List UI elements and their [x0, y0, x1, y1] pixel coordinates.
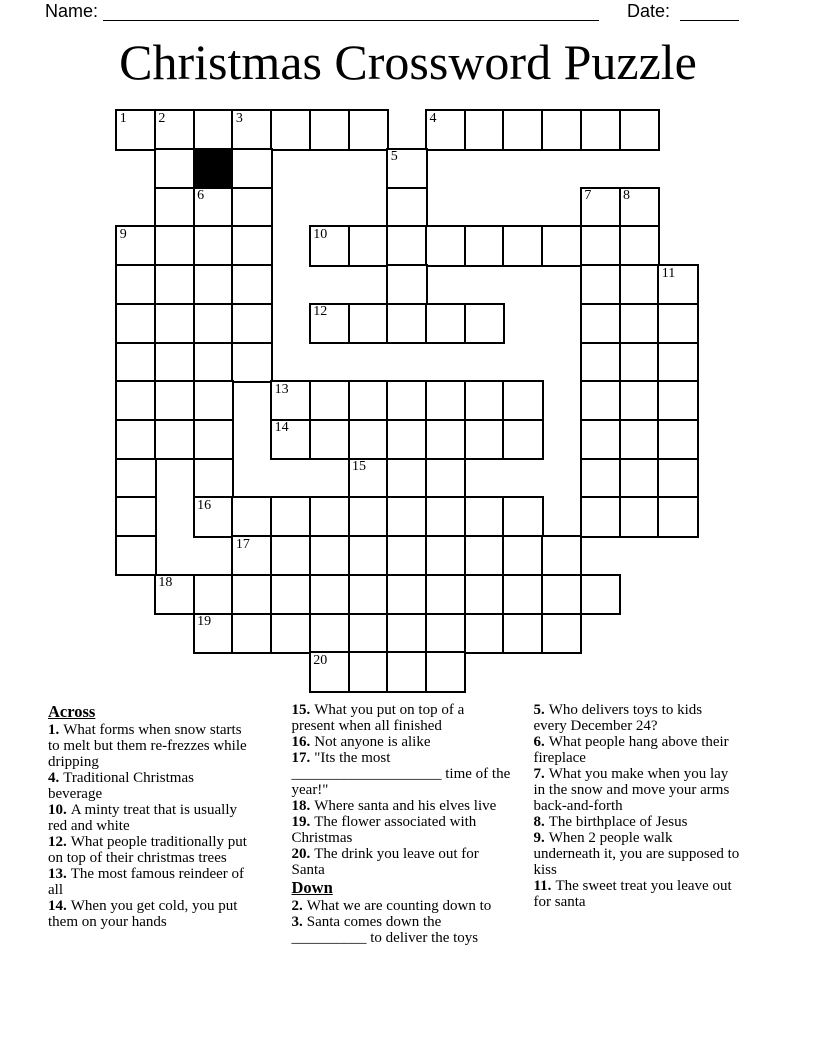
grid-cell-r14c6[interactable]: [348, 651, 389, 692]
crossword-grid: 1234567891011121314151617181920: [117, 111, 698, 692]
grid-cell-r9c8[interactable]: [425, 458, 466, 499]
grid-cell-r4c7[interactable]: [386, 264, 427, 305]
grid-cell-r13c11[interactable]: [541, 613, 582, 654]
black-cell-r1c2: [193, 148, 234, 189]
clue-18: 18.Where santa and his elves live: [292, 798, 538, 814]
grid-cell-r7c7[interactable]: [386, 380, 427, 421]
grid-cell-r10c14[interactable]: [657, 496, 698, 537]
grid-cell-r3c3[interactable]: [231, 225, 272, 266]
grid-cell-r3c7[interactable]: [386, 225, 427, 266]
grid-cell-r9c2[interactable]: [193, 458, 234, 499]
grid-cell-r10c5[interactable]: [309, 496, 350, 537]
clue-14: 14.When you get cold, you put them on yo…: [48, 898, 292, 930]
cell-number: 5: [391, 150, 398, 164]
grid-cell-r5c8[interactable]: [425, 303, 466, 344]
clue-number: 13.: [48, 866, 67, 882]
grid-cell-r2c1[interactable]: [154, 187, 195, 228]
clue-column-3: 5.Who delivers toys to kids every Decemb…: [534, 702, 786, 910]
clue-text: Not anyone is alike: [314, 734, 430, 750]
grid-cell-r4c14[interactable]: 11: [657, 264, 698, 305]
clue-text: The sweet treat you leave out for santa: [534, 878, 732, 910]
grid-cell-r6c13[interactable]: [619, 342, 660, 383]
grid-cell-r7c0[interactable]: [115, 380, 156, 421]
grid-cell-r5c9[interactable]: [464, 303, 505, 344]
grid-cell-r8c1[interactable]: [154, 419, 195, 460]
cell-number: 7: [584, 189, 591, 203]
grid-cell-r5c12[interactable]: [580, 303, 621, 344]
grid-cell-r0c2[interactable]: [193, 109, 234, 150]
clue-19: 19.The flower associated with Christmas: [292, 814, 538, 846]
grid-cell-r12c11[interactable]: [541, 574, 582, 615]
grid-cell-r3c5[interactable]: 10: [309, 225, 350, 266]
grid-cell-r2c3[interactable]: [231, 187, 272, 228]
grid-cell-r11c4[interactable]: [270, 535, 311, 576]
clue-text: Where santa and his elves live: [314, 798, 496, 814]
cell-number: 12: [313, 305, 327, 319]
grid-cell-r12c1[interactable]: 18: [154, 574, 195, 615]
clue-1: 1.What forms when snow starts to melt bu…: [48, 722, 292, 770]
grid-cell-r7c9[interactable]: [464, 380, 505, 421]
down-heading: Down: [292, 878, 538, 898]
grid-cell-r7c10[interactable]: [502, 380, 543, 421]
grid-cell-r6c0[interactable]: [115, 342, 156, 383]
grid-cell-r10c12[interactable]: [580, 496, 621, 537]
clue-13: 13.The most famous reindeer of all: [48, 866, 292, 898]
clues-section: Across1.What forms when snow starts to m…: [0, 702, 816, 1056]
clue-6: 6.What people hang above their fireplace: [534, 734, 786, 766]
grid-cell-r11c0[interactable]: [115, 535, 156, 576]
grid-cell-r3c10[interactable]: [502, 225, 543, 266]
cell-number: 11: [662, 267, 675, 281]
grid-cell-r2c13[interactable]: 8: [619, 187, 660, 228]
grid-cell-r10c9[interactable]: [464, 496, 505, 537]
clue-number: 4.: [48, 770, 59, 786]
clue-number: 1.: [48, 722, 59, 738]
grid-cell-r11c6[interactable]: [348, 535, 389, 576]
grid-cell-r10c6[interactable]: [348, 496, 389, 537]
clue-number: 6.: [534, 734, 545, 750]
grid-cell-r5c2[interactable]: [193, 303, 234, 344]
grid-cell-r4c13[interactable]: [619, 264, 660, 305]
clue-10: 10.A minty treat that is usually red and…: [48, 802, 292, 834]
grid-cell-r11c11[interactable]: [541, 535, 582, 576]
grid-cell-r0c13[interactable]: [619, 109, 660, 150]
clue-number: 10.: [48, 802, 67, 818]
grid-cell-r6c2[interactable]: [193, 342, 234, 383]
grid-cell-r3c13[interactable]: [619, 225, 660, 266]
grid-cell-r13c8[interactable]: [425, 613, 466, 654]
grid-cell-r10c13[interactable]: [619, 496, 660, 537]
clue-text: What forms when snow starts to melt but …: [48, 722, 247, 770]
clue-number: 20.: [292, 846, 311, 862]
grid-cell-r4c12[interactable]: [580, 264, 621, 305]
clue-3: 3.Santa comes down the __________ to del…: [292, 914, 538, 946]
grid-cell-r13c10[interactable]: [502, 613, 543, 654]
worksheet-page: Name: Date: Christmas Crossword Puzzle 1…: [0, 0, 816, 1056]
grid-cell-r6c14[interactable]: [657, 342, 698, 383]
clue-number: 14.: [48, 898, 67, 914]
grid-cell-r7c14[interactable]: [657, 380, 698, 421]
grid-cell-r3c8[interactable]: [425, 225, 466, 266]
grid-cell-r0c4[interactable]: [270, 109, 311, 150]
date-field-line[interactable]: [680, 3, 739, 21]
grid-cell-r8c7[interactable]: [386, 419, 427, 460]
grid-cell-r10c8[interactable]: [425, 496, 466, 537]
clue-text: What people traditionally put on top of …: [48, 834, 247, 866]
grid-cell-r13c4[interactable]: [270, 613, 311, 654]
grid-cell-r5c14[interactable]: [657, 303, 698, 344]
clue-number: 8.: [534, 814, 545, 830]
grid-cell-r11c7[interactable]: [386, 535, 427, 576]
grid-cell-r13c7[interactable]: [386, 613, 427, 654]
grid-cell-r7c5[interactable]: [309, 380, 350, 421]
cell-number: 20: [313, 654, 327, 668]
grid-cell-r12c4[interactable]: [270, 574, 311, 615]
grid-cell-r3c12[interactable]: [580, 225, 621, 266]
grid-cell-r3c0[interactable]: 9: [115, 225, 156, 266]
grid-cell-r1c1[interactable]: [154, 148, 195, 189]
grid-cell-r0c12[interactable]: [580, 109, 621, 150]
grid-cell-r7c13[interactable]: [619, 380, 660, 421]
cell-number: 17: [236, 538, 250, 552]
grid-cell-r12c5[interactable]: [309, 574, 350, 615]
grid-cell-r10c4[interactable]: [270, 496, 311, 537]
grid-cell-r5c13[interactable]: [619, 303, 660, 344]
cell-number: 1: [120, 112, 127, 126]
grid-cell-r8c4[interactable]: 14: [270, 419, 311, 460]
grid-cell-r1c7[interactable]: 5: [386, 148, 427, 189]
grid-cell-r4c1[interactable]: [154, 264, 195, 305]
clue-column-1: Across1.What forms when snow starts to m…: [48, 702, 292, 930]
clue-number: 17.: [292, 750, 311, 766]
cell-number: 18: [158, 576, 172, 590]
grid-cell-r9c14[interactable]: [657, 458, 698, 499]
clue-number: 11.: [534, 878, 552, 894]
grid-cell-r9c0[interactable]: [115, 458, 156, 499]
grid-cell-r11c9[interactable]: [464, 535, 505, 576]
grid-cell-r0c8[interactable]: 4: [425, 109, 466, 150]
grid-cell-r10c0[interactable]: [115, 496, 156, 537]
grid-cell-r8c12[interactable]: [580, 419, 621, 460]
grid-cell-r0c6[interactable]: [348, 109, 389, 150]
cell-number: 14: [275, 421, 289, 435]
cell-number: 3: [236, 112, 243, 126]
grid-cell-r13c2[interactable]: 19: [193, 613, 234, 654]
clue-7: 7.What you make when you lay in the snow…: [534, 766, 786, 814]
grid-cell-r14c8[interactable]: [425, 651, 466, 692]
grid-cell-r12c12[interactable]: [580, 574, 621, 615]
grid-cell-r10c7[interactable]: [386, 496, 427, 537]
grid-cell-r0c0[interactable]: 1: [115, 109, 156, 150]
grid-cell-r6c3[interactable]: [231, 342, 272, 383]
grid-cell-r7c6[interactable]: [348, 380, 389, 421]
grid-cell-r13c6[interactable]: [348, 613, 389, 654]
grid-cell-r12c8[interactable]: [425, 574, 466, 615]
grid-cell-r4c0[interactable]: [115, 264, 156, 305]
grid-cell-r14c5[interactable]: 20: [309, 651, 350, 692]
clue-8: 8.The birthplace of Jesus: [534, 814, 786, 830]
clue-number: 7.: [534, 766, 545, 782]
grid-cell-r2c2[interactable]: 6: [193, 187, 234, 228]
grid-cell-r3c1[interactable]: [154, 225, 195, 266]
grid-cell-r6c12[interactable]: [580, 342, 621, 383]
grid-cell-r4c2[interactable]: [193, 264, 234, 305]
clue-15: 15.What you put on top of a present when…: [292, 702, 538, 734]
clue-20: 20.The drink you leave out for Santa: [292, 846, 538, 878]
clue-number: 16.: [292, 734, 311, 750]
grid-cell-r3c2[interactable]: [193, 225, 234, 266]
clue-text: When you get cold, you put them on your …: [48, 898, 237, 930]
clue-text: "Its the most ____________________ time …: [292, 750, 511, 798]
clue-12: 12.What people traditionally put on top …: [48, 834, 292, 866]
grid-cell-r7c12[interactable]: [580, 380, 621, 421]
grid-cell-r2c12[interactable]: 7: [580, 187, 621, 228]
grid-cell-r0c3[interactable]: 3: [231, 109, 272, 150]
cell-number: 8: [623, 189, 630, 203]
grid-cell-r8c9[interactable]: [464, 419, 505, 460]
clue-text: Who delivers toys to kids every December…: [534, 702, 703, 734]
grid-cell-r12c9[interactable]: [464, 574, 505, 615]
across-heading: Across: [48, 702, 292, 722]
cell-number: 4: [429, 112, 436, 126]
grid-cell-r8c2[interactable]: [193, 419, 234, 460]
grid-cell-r11c8[interactable]: [425, 535, 466, 576]
grid-cell-r0c1[interactable]: 2: [154, 109, 195, 150]
grid-cell-r10c2[interactable]: 16: [193, 496, 234, 537]
grid-cell-r1c3[interactable]: [231, 148, 272, 189]
grid-cell-r3c11[interactable]: [541, 225, 582, 266]
grid-cell-r11c5[interactable]: [309, 535, 350, 576]
cell-number: 15: [352, 460, 366, 474]
grid-cell-r5c0[interactable]: [115, 303, 156, 344]
clue-5: 5.Who delivers toys to kids every Decemb…: [534, 702, 786, 734]
clue-text: The most famous reindeer of all: [48, 866, 244, 898]
cell-number: 10: [313, 228, 327, 242]
grid-cell-r8c5[interactable]: [309, 419, 350, 460]
grid-cell-r10c3[interactable]: [231, 496, 272, 537]
grid-cell-r13c9[interactable]: [464, 613, 505, 654]
grid-cell-r5c3[interactable]: [231, 303, 272, 344]
clue-number: 15.: [292, 702, 311, 718]
grid-cell-r10c10[interactable]: [502, 496, 543, 537]
grid-cell-r7c1[interactable]: [154, 380, 195, 421]
grid-cell-r14c7[interactable]: [386, 651, 427, 692]
grid-cell-r5c7[interactable]: [386, 303, 427, 344]
grid-cell-r0c10[interactable]: [502, 109, 543, 150]
clue-text: When 2 people walk underneath it, you ar…: [534, 830, 740, 878]
cell-number: 6: [197, 189, 204, 203]
grid-cell-r0c9[interactable]: [464, 109, 505, 150]
grid-cell-r8c8[interactable]: [425, 419, 466, 460]
grid-cell-r8c6[interactable]: [348, 419, 389, 460]
clue-text: Traditional Christmas beverage: [48, 770, 194, 802]
clue-11: 11.The sweet treat you leave out for san…: [534, 878, 786, 910]
clue-number: 19.: [292, 814, 311, 830]
grid-cell-r8c0[interactable]: [115, 419, 156, 460]
clue-text: The flower associated with Christmas: [292, 814, 477, 846]
grid-cell-r13c3[interactable]: [231, 613, 272, 654]
name-label: Name:: [45, 1, 98, 21]
grid-cell-r8c10[interactable]: [502, 419, 543, 460]
grid-cell-r5c1[interactable]: [154, 303, 195, 344]
cell-number: 9: [120, 228, 127, 242]
grid-cell-r7c2[interactable]: [193, 380, 234, 421]
clue-2: 2.What we are counting down to: [292, 898, 538, 914]
grid-cell-r9c12[interactable]: [580, 458, 621, 499]
grid-cell-r0c11[interactable]: [541, 109, 582, 150]
clue-4: 4.Traditional Christmas beverage: [48, 770, 292, 802]
grid-cell-r5c5[interactable]: 12: [309, 303, 350, 344]
grid-cell-r13c5[interactable]: [309, 613, 350, 654]
grid-cell-r9c6[interactable]: 15: [348, 458, 389, 499]
clue-number: 5.: [534, 702, 545, 718]
clue-number: 12.: [48, 834, 67, 850]
grid-cell-r6c1[interactable]: [154, 342, 195, 383]
grid-cell-r7c4[interactable]: 13: [270, 380, 311, 421]
grid-cell-r4c3[interactable]: [231, 264, 272, 305]
clue-text: A minty treat that is usually red and wh…: [48, 802, 237, 834]
page-title: Christmas Crossword Puzzle: [0, 35, 816, 89]
grid-cell-r12c7[interactable]: [386, 574, 427, 615]
grid-cell-r8c14[interactable]: [657, 419, 698, 460]
grid-cell-r2c7[interactable]: [386, 187, 427, 228]
date-label: Date:: [627, 1, 670, 21]
grid-cell-r3c6[interactable]: [348, 225, 389, 266]
grid-cell-r5c6[interactable]: [348, 303, 389, 344]
clue-text: The birthplace of Jesus: [549, 814, 688, 830]
clue-16: 16.Not anyone is alike: [292, 734, 538, 750]
grid-cell-r12c3[interactable]: [231, 574, 272, 615]
grid-cell-r12c10[interactable]: [502, 574, 543, 615]
grid-cell-r3c9[interactable]: [464, 225, 505, 266]
clue-number: 9.: [534, 830, 545, 846]
clue-9: 9.When 2 people walk underneath it, you …: [534, 830, 786, 878]
grid-cell-r9c7[interactable]: [386, 458, 427, 499]
cell-number: 13: [275, 383, 289, 397]
cell-number: 16: [197, 499, 211, 513]
clue-text: What people hang above their fireplace: [534, 734, 729, 766]
cell-number: 2: [158, 112, 165, 126]
grid-cell-r12c2[interactable]: [193, 574, 234, 615]
grid-cell-r8c13[interactable]: [619, 419, 660, 460]
clue-number: 2.: [292, 898, 303, 914]
name-field-line[interactable]: [103, 3, 599, 21]
clue-number: 3.: [292, 914, 303, 930]
clue-17: 17."Its the most ____________________ ti…: [292, 750, 538, 798]
clue-number: 18.: [292, 798, 311, 814]
grid-cell-r7c8[interactable]: [425, 380, 466, 421]
cell-number: 19: [197, 615, 211, 629]
grid-cell-r11c10[interactable]: [502, 535, 543, 576]
clue-text: What we are counting down to: [307, 898, 492, 914]
clue-text: What you put on top of a present when al…: [292, 702, 465, 734]
grid-cell-r11c3[interactable]: 17: [231, 535, 272, 576]
grid-cell-r0c5[interactable]: [309, 109, 350, 150]
clue-column-2: 15.What you put on top of a present when…: [292, 702, 538, 946]
clue-text: What you make when you lay in the snow a…: [534, 766, 730, 814]
grid-cell-r9c13[interactable]: [619, 458, 660, 499]
grid-cell-r12c6[interactable]: [348, 574, 389, 615]
clue-text: The drink you leave out for Santa: [292, 846, 479, 878]
clue-text: Santa comes down the __________ to deliv…: [292, 914, 479, 946]
